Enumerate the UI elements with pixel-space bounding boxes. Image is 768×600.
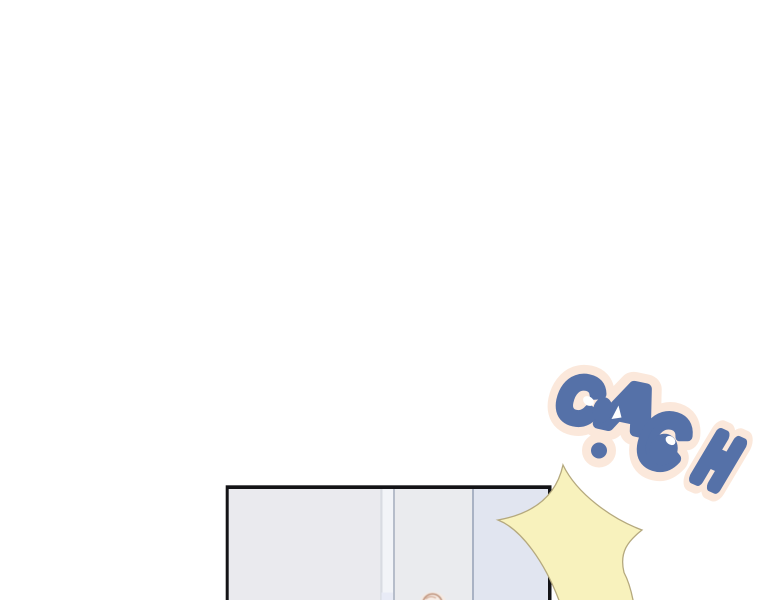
- svg-text:H: H: [687, 418, 749, 504]
